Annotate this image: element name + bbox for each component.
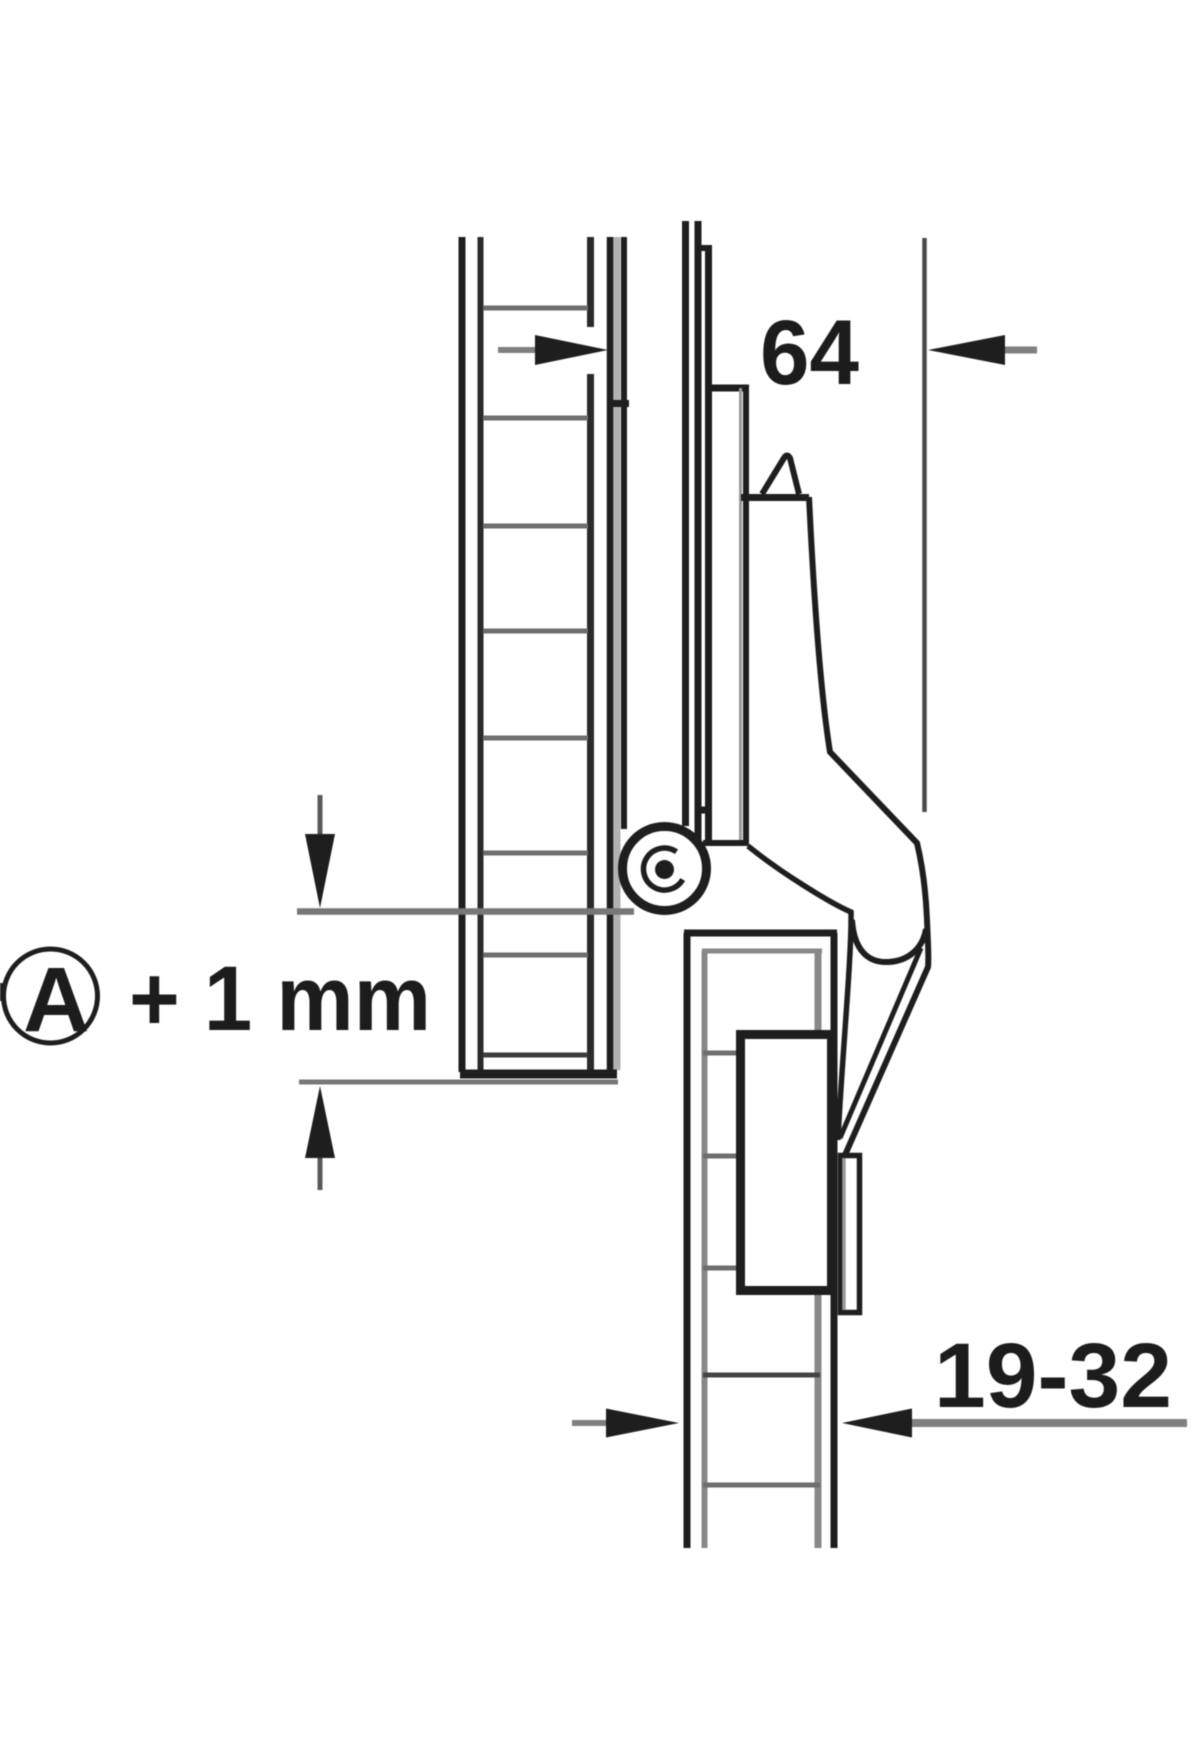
svg-text:+ 1 mm: + 1 mm — [129, 948, 431, 1050]
svg-text:19-32: 19-32 — [934, 1325, 1172, 1427]
svg-text:64: 64 — [760, 302, 859, 404]
svg-text:A: A — [23, 949, 89, 1051]
